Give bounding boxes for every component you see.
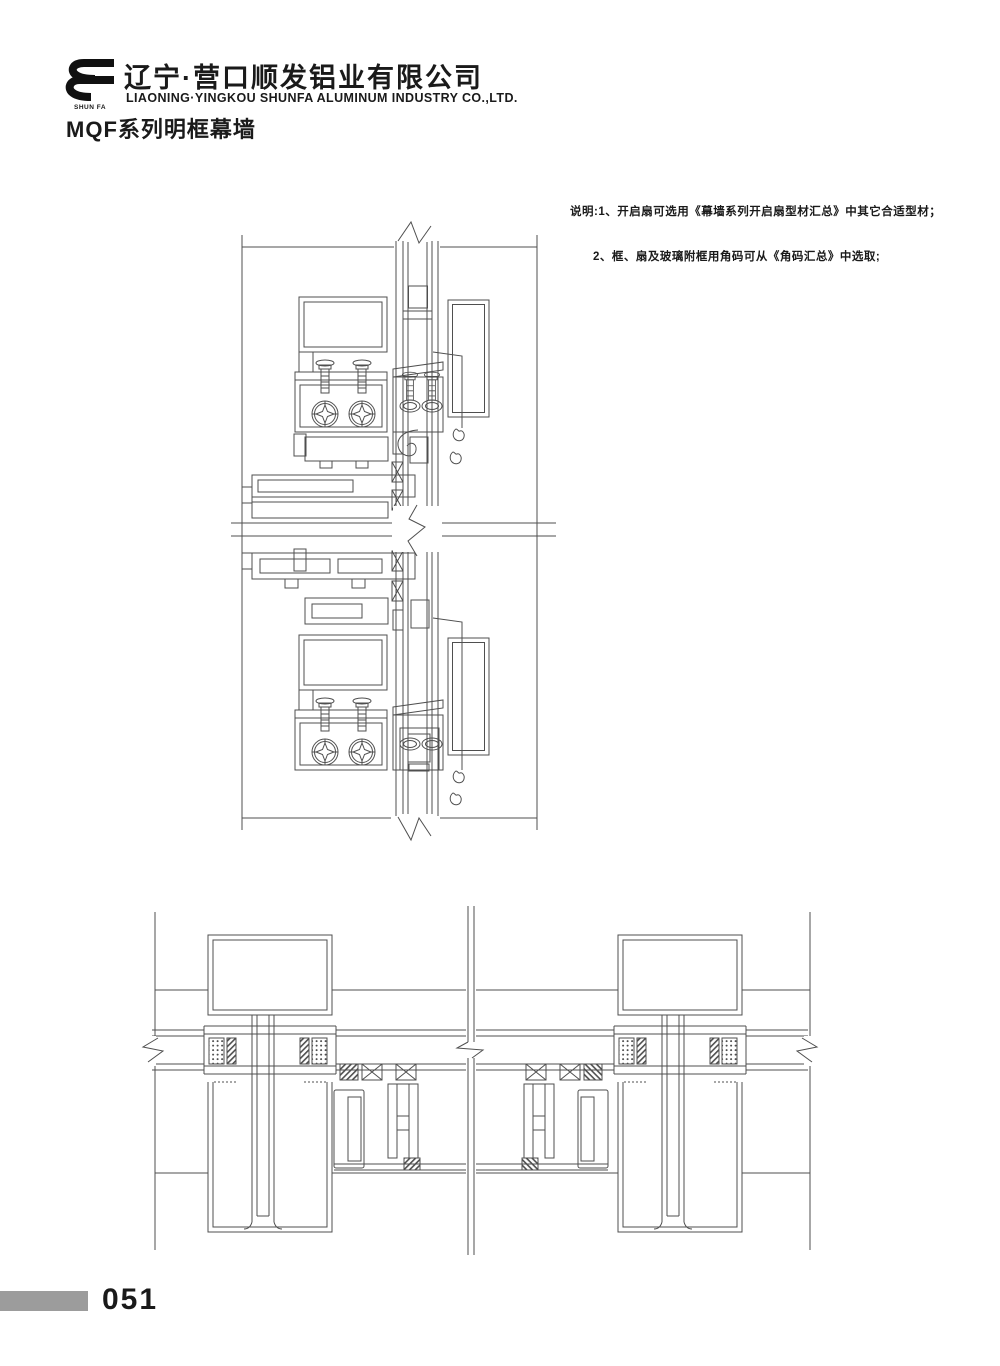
- company-logo: [62, 56, 118, 102]
- page-number: 051: [102, 1283, 158, 1317]
- logo-mark-icon: [62, 56, 118, 102]
- company-name-cn: 辽宁·营口顺发铝业有限公司: [124, 56, 483, 95]
- vertical-section-drawing: [225, 218, 580, 850]
- company-name-en: LIAONING·YINGKOU SHUNFA ALUMINUM INDUSTR…: [126, 91, 518, 105]
- series-title: MQF系列明框幕墙: [66, 112, 256, 144]
- note-line-2: 2、框、扇及玻璃附框用角码可从《角码汇总》中选取;: [593, 248, 880, 264]
- catalog-page: SHUN FA 辽宁·营口顺发铝业有限公司 LIAONING·YINGKOU S…: [0, 0, 1000, 1366]
- note-line-1: 说明:1、开启扇可选用《幕墙系列开启扇型材汇总》中其它合适型材；: [570, 203, 941, 219]
- logo-caption: SHUN FA: [74, 104, 106, 111]
- horizontal-section-drawing: [136, 896, 826, 1264]
- footer-bar: [0, 1291, 88, 1311]
